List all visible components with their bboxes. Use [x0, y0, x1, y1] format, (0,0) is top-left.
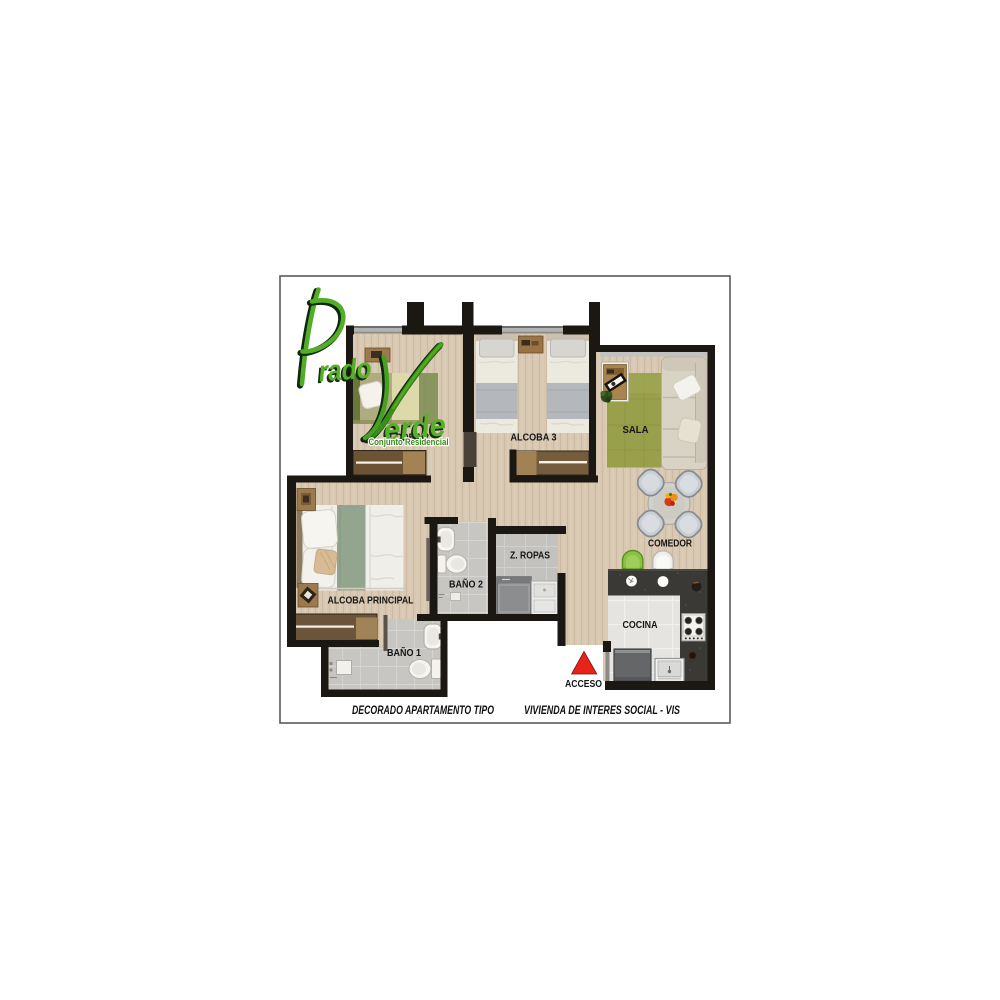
svg-text:COCINA: COCINA — [623, 620, 658, 631]
svg-text:COMEDOR: COMEDOR — [648, 539, 693, 550]
svg-text:ALCOBA 3: ALCOBA 3 — [511, 433, 557, 444]
svg-text:SALA: SALA — [623, 425, 649, 436]
svg-text:BAÑO 2: BAÑO 2 — [449, 578, 483, 591]
svg-text:Z. ROPAS: Z. ROPAS — [510, 550, 550, 561]
svg-text:ALCOBA PRINCIPAL: ALCOBA PRINCIPAL — [328, 596, 414, 607]
svg-text:BAÑO 1: BAÑO 1 — [387, 646, 421, 659]
svg-text:rado: rado — [317, 353, 372, 389]
svg-text:Conjunto Residencial: Conjunto Residencial — [369, 437, 449, 447]
svg-text:ACCESO: ACCESO — [565, 679, 602, 690]
svg-text:DECORADO APARTAMENTO TIPO: DECORADO APARTAMENTO TIPO — [352, 705, 494, 717]
svg-text:VIVIENDA DE INTERES SOCIAL - V: VIVIENDA DE INTERES SOCIAL - VIS — [524, 705, 680, 717]
